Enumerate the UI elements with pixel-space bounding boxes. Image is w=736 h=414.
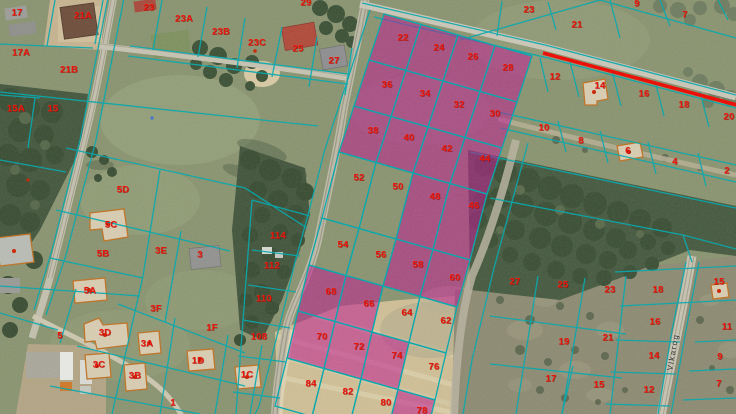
parcel-label[interactable]: 23B bbox=[212, 27, 230, 38]
parcel-label[interactable]: 48 bbox=[430, 192, 441, 203]
parcel-label[interactable]: 3C bbox=[93, 360, 106, 371]
parcel-label[interactable]: 3F bbox=[150, 304, 162, 315]
parcel-label[interactable]: 16 bbox=[650, 317, 661, 328]
parcel-label[interactable]: 78 bbox=[417, 406, 428, 414]
parcel-label[interactable]: 5D bbox=[117, 185, 130, 196]
parcel-label[interactable]: 56 bbox=[376, 250, 387, 261]
parcel-label[interactable]: 23A bbox=[175, 14, 193, 25]
parcel-label[interactable]: 12 bbox=[550, 72, 561, 83]
parcel-label[interactable]: 21 bbox=[603, 333, 614, 344]
parcel-label[interactable]: 80 bbox=[381, 398, 392, 409]
parcel-label[interactable]: 4 bbox=[672, 157, 677, 168]
parcel-label[interactable]: 26 bbox=[468, 52, 479, 63]
parcel-label[interactable]: 114 bbox=[270, 231, 286, 242]
parcel-label[interactable]: 3B bbox=[129, 371, 142, 382]
parcel-label[interactable]: 18 bbox=[653, 285, 664, 296]
parcel-label[interactable]: 17 bbox=[546, 374, 557, 385]
parcel-label[interactable]: 3A bbox=[141, 339, 154, 350]
parcel-label[interactable]: 19 bbox=[559, 337, 570, 348]
parcel-label[interactable]: 16 bbox=[639, 89, 650, 100]
parcel-label[interactable]: 24 bbox=[434, 43, 445, 54]
parcel-label[interactable]: 6 bbox=[625, 146, 630, 157]
parcel-label[interactable]: 21B bbox=[60, 65, 78, 76]
parcel-label[interactable]: 36 bbox=[382, 80, 393, 91]
parcel-label[interactable]: 5 bbox=[57, 331, 62, 342]
parcel-label[interactable]: 15A bbox=[7, 104, 25, 115]
parcel-label[interactable]: 58 bbox=[413, 260, 424, 271]
parcel-label[interactable]: 72 bbox=[354, 342, 365, 353]
parcel-label[interactable]: 9 bbox=[634, 0, 639, 10]
parcel-label[interactable]: 10 bbox=[539, 123, 550, 134]
parcel-label[interactable]: 17A bbox=[12, 48, 30, 59]
parcel-label[interactable]: 5A bbox=[84, 286, 97, 297]
parcel-label[interactable]: 1C bbox=[241, 370, 254, 381]
parcel-label[interactable]: 23 bbox=[524, 5, 535, 16]
parcel-label[interactable]: 62 bbox=[441, 316, 452, 327]
parcel-label[interactable]: 32 bbox=[454, 100, 465, 111]
parcel-label[interactable]: 20 bbox=[724, 112, 735, 123]
parcel-label[interactable]: 110 bbox=[256, 294, 272, 305]
parcel-label[interactable]: 23C bbox=[248, 38, 266, 49]
parcel-label[interactable]: 52 bbox=[354, 173, 365, 184]
parcel-label[interactable]: 17 bbox=[12, 8, 23, 19]
parcel-label[interactable]: 84 bbox=[306, 379, 317, 390]
parcel-label[interactable]: 108 bbox=[251, 332, 267, 343]
parcel-label[interactable]: 23 bbox=[605, 285, 616, 296]
parcel-label[interactable]: 14 bbox=[649, 351, 660, 362]
parcel-label[interactable]: 2 bbox=[724, 166, 729, 177]
parcel-label[interactable]: 30 bbox=[490, 109, 501, 120]
parcel-label[interactable]: 9 bbox=[717, 352, 722, 363]
parcel-label[interactable]: 18 bbox=[679, 100, 690, 111]
parcel-label[interactable]: 82 bbox=[343, 387, 354, 398]
parcel-label[interactable]: 68 bbox=[326, 287, 337, 298]
parcel-label[interactable]: 1 bbox=[170, 398, 175, 409]
parcel-label[interactable]: 15 bbox=[48, 104, 59, 115]
parcel-label[interactable]: 8 bbox=[578, 136, 583, 147]
parcel-label[interactable]: 40 bbox=[404, 133, 415, 144]
parcel-label[interactable]: 60 bbox=[450, 273, 461, 284]
parcel-label[interactable]: 5C bbox=[105, 220, 118, 231]
parcel-label[interactable]: 28 bbox=[503, 63, 514, 74]
parcel-label[interactable]: 21A bbox=[74, 11, 92, 22]
parcel-label[interactable]: 3E bbox=[155, 246, 167, 257]
parcel-label[interactable]: 74 bbox=[392, 351, 403, 362]
parcel-label[interactable]: 3 bbox=[197, 250, 202, 261]
parcel-label[interactable]: 22 bbox=[398, 33, 409, 44]
parcel-label[interactable]: 27 bbox=[329, 56, 340, 67]
parcel-label[interactable]: 46 bbox=[469, 201, 480, 212]
cadastral-map[interactable]: 1721A2323A23B23C25272917A21B15A155D5C5B3… bbox=[0, 0, 736, 414]
parcel-label[interactable]: 25 bbox=[293, 44, 304, 55]
parcel-label[interactable]: 23 bbox=[144, 3, 155, 14]
parcel-label[interactable]: 29 bbox=[301, 0, 312, 9]
parcel-label[interactable]: 3D bbox=[99, 328, 112, 339]
parcel-label[interactable]: 42 bbox=[442, 144, 453, 155]
parcel-label[interactable]: 76 bbox=[429, 362, 440, 373]
parcel-label[interactable]: 11 bbox=[722, 322, 732, 333]
parcel-label[interactable]: 14 bbox=[595, 81, 606, 92]
parcel-label[interactable]: 1D bbox=[192, 356, 205, 367]
parcel-label[interactable]: 44 bbox=[480, 154, 491, 165]
parcel-label[interactable]: 112 bbox=[264, 261, 280, 272]
parcel-label[interactable]: 5B bbox=[97, 249, 110, 260]
parcel-label[interactable]: 66 bbox=[364, 299, 375, 310]
parcel-label[interactable]: 64 bbox=[402, 308, 413, 319]
parcel-label[interactable]: 7 bbox=[682, 10, 687, 21]
parcel-label[interactable]: 54 bbox=[338, 240, 349, 251]
parcel-label[interactable]: 50 bbox=[393, 182, 404, 193]
parcel-label[interactable]: 1F bbox=[206, 323, 218, 334]
parcel-label[interactable]: 38 bbox=[368, 126, 379, 137]
parcel-label[interactable]: 21 bbox=[572, 20, 583, 31]
parcel-label[interactable]: 34 bbox=[420, 89, 431, 100]
parcel-label[interactable]: 12 bbox=[644, 385, 655, 396]
parcel-label[interactable]: 15 bbox=[594, 380, 605, 391]
parcel-label[interactable]: 15 bbox=[714, 277, 725, 288]
parcel-label[interactable]: 25 bbox=[558, 280, 569, 291]
grain-overlay bbox=[0, 0, 736, 414]
map-canvas bbox=[0, 0, 736, 414]
parcel-label[interactable]: 7 bbox=[716, 379, 721, 390]
parcel-label[interactable]: 27 bbox=[510, 277, 521, 288]
parcel-label[interactable]: 70 bbox=[317, 332, 328, 343]
